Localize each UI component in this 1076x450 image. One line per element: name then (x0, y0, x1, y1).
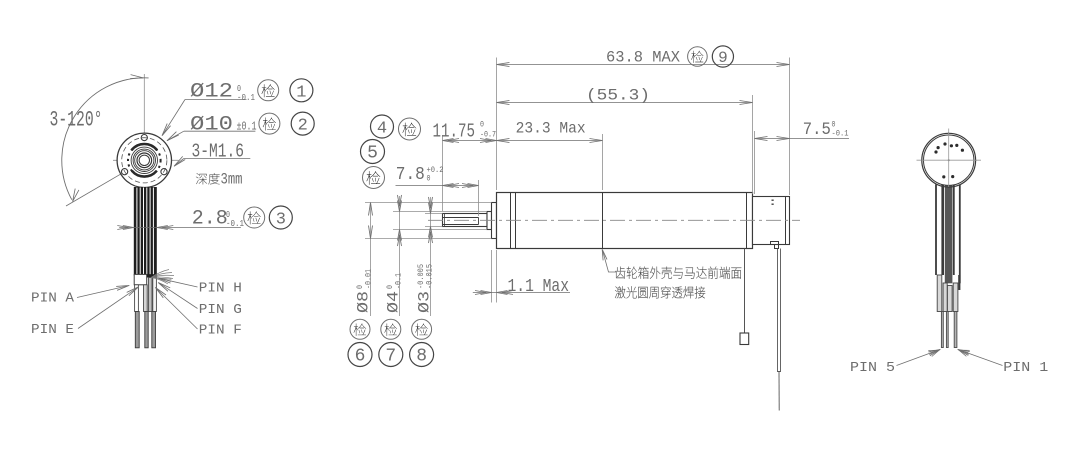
svg-text:3mm: 3mm (221, 171, 243, 189)
svg-text:1: 1 (296, 83, 306, 102)
svg-text:Ø4: Ø4 (385, 291, 403, 313)
svg-text:2: 2 (298, 117, 308, 136)
svg-text:23.3 Max: 23.3 Max (516, 120, 586, 138)
svg-text:PIN A: PIN A (31, 291, 75, 307)
svg-text:-0.1: -0.1 (395, 273, 404, 289)
svg-text:Ø8: Ø8 (355, 291, 373, 313)
svg-text:63.8 MAX: 63.8 MAX (606, 49, 680, 67)
svg-text:-0.1: -0.1 (237, 93, 255, 103)
svg-text:8: 8 (416, 347, 427, 367)
svg-text:7.5: 7.5 (803, 120, 831, 140)
svg-text:3-M1.6: 3-M1.6 (192, 141, 245, 163)
svg-text:0: 0 (427, 174, 431, 184)
svg-text:-0.015: -0.015 (426, 264, 435, 289)
svg-text:Ø10: Ø10 (190, 114, 233, 137)
svg-text:9: 9 (718, 49, 728, 67)
svg-text:Ø3: Ø3 (416, 291, 434, 313)
svg-text:PIN E: PIN E (31, 322, 74, 338)
svg-text:7: 7 (385, 347, 396, 367)
svg-text:-0.7: -0.7 (480, 130, 496, 139)
svg-text:5: 5 (367, 144, 378, 164)
svg-text:-0.01: -0.01 (365, 269, 374, 289)
svg-text:4: 4 (377, 120, 387, 139)
svg-text:-0.1: -0.1 (226, 219, 244, 229)
svg-text:PIN G: PIN G (199, 302, 242, 318)
svg-text:3: 3 (276, 211, 286, 230)
svg-text:Ø12: Ø12 (190, 81, 233, 104)
svg-text:PIN H: PIN H (199, 281, 242, 297)
svg-text:0: 0 (480, 120, 484, 129)
svg-text:3-120°: 3-120° (50, 108, 103, 133)
svg-text:(55.3): (55.3) (586, 87, 650, 105)
svg-text:11.75: 11.75 (433, 120, 476, 142)
svg-text:6: 6 (355, 347, 366, 367)
svg-text:PIN F: PIN F (199, 323, 242, 339)
svg-text:2.8: 2.8 (192, 208, 228, 231)
svg-text:7.8: 7.8 (396, 165, 425, 185)
svg-text:PIN 5: PIN 5 (850, 360, 895, 376)
svg-text:PIN 1: PIN 1 (1003, 360, 1048, 376)
svg-text:-0.1: -0.1 (832, 129, 849, 139)
svg-text:1.1 Max: 1.1 Max (508, 276, 570, 297)
